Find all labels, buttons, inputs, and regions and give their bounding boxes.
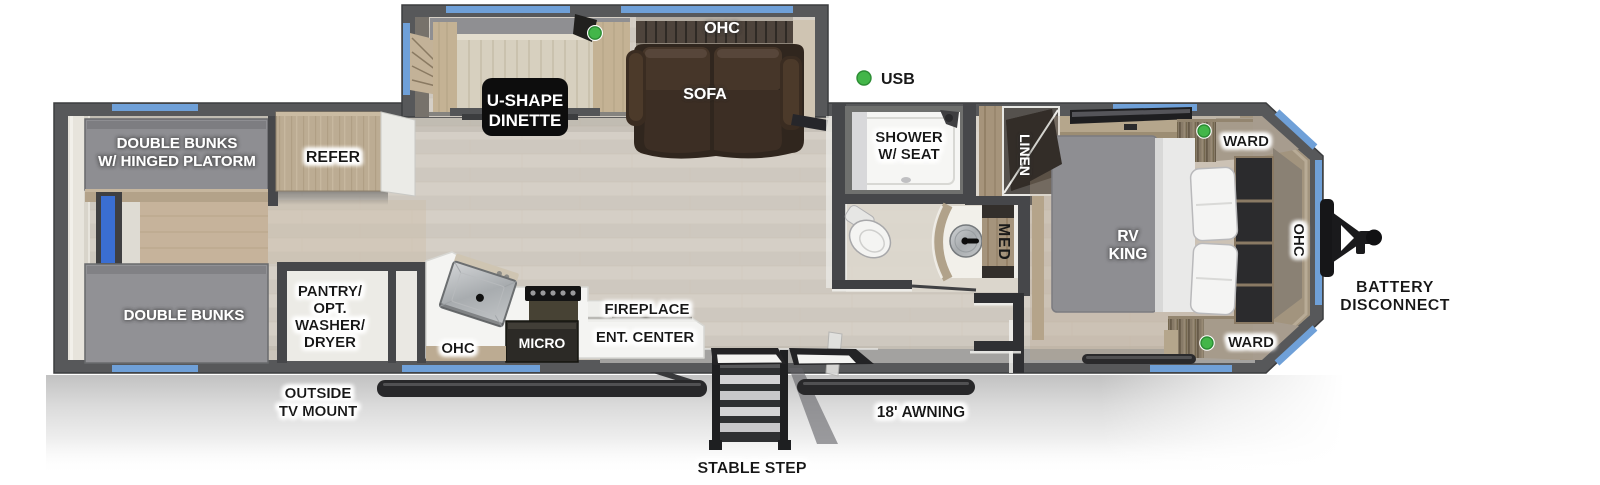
svg-text:WARD: WARD (1228, 334, 1274, 351)
svg-text:SOFA: SOFA (683, 86, 727, 103)
svg-text:ENT. CENTER: ENT. CENTER (596, 329, 695, 346)
svg-text:OHC: OHC (1290, 223, 1307, 257)
svg-text:DISCONNECT: DISCONNECT (1340, 297, 1450, 314)
svg-text:DRYER: DRYER (304, 334, 356, 351)
svg-text:OHC: OHC (704, 20, 740, 37)
svg-text:KING: KING (1109, 246, 1148, 263)
svg-text:DOUBLE BUNKS: DOUBLE BUNKS (117, 135, 238, 152)
svg-text:OHC: OHC (441, 340, 475, 357)
svg-text:SHOWER: SHOWER (875, 129, 943, 146)
svg-text:TV MOUNT: TV MOUNT (279, 403, 357, 420)
svg-text:USB: USB (881, 71, 915, 88)
svg-text:MED: MED (995, 223, 1012, 260)
svg-text:STABLE STEP: STABLE STEP (697, 460, 806, 477)
svg-text:DINETTE: DINETTE (489, 111, 562, 130)
svg-text:DOUBLE BUNKS: DOUBLE BUNKS (124, 307, 245, 324)
svg-text:REFER: REFER (306, 149, 361, 166)
svg-text:FIREPLACE: FIREPLACE (604, 301, 689, 318)
svg-text:BATTERY: BATTERY (1356, 279, 1434, 296)
svg-text:W/ HINGED PLATORM: W/ HINGED PLATORM (98, 153, 256, 170)
svg-text:OUTSIDE: OUTSIDE (285, 385, 352, 402)
svg-text:U-SHAPE: U-SHAPE (487, 91, 564, 110)
svg-text:18' AWNING: 18' AWNING (877, 404, 965, 421)
svg-text:WARD: WARD (1223, 133, 1269, 150)
svg-text:OPT.: OPT. (313, 300, 346, 317)
svg-text:RV: RV (1117, 228, 1139, 245)
svg-text:PANTRY/: PANTRY/ (298, 283, 363, 300)
svg-text:W/ SEAT: W/ SEAT (878, 146, 939, 163)
svg-text:MICRO: MICRO (519, 335, 566, 351)
svg-text:WASHER/: WASHER/ (295, 317, 366, 334)
svg-text:LINEN: LINEN (1017, 134, 1033, 176)
